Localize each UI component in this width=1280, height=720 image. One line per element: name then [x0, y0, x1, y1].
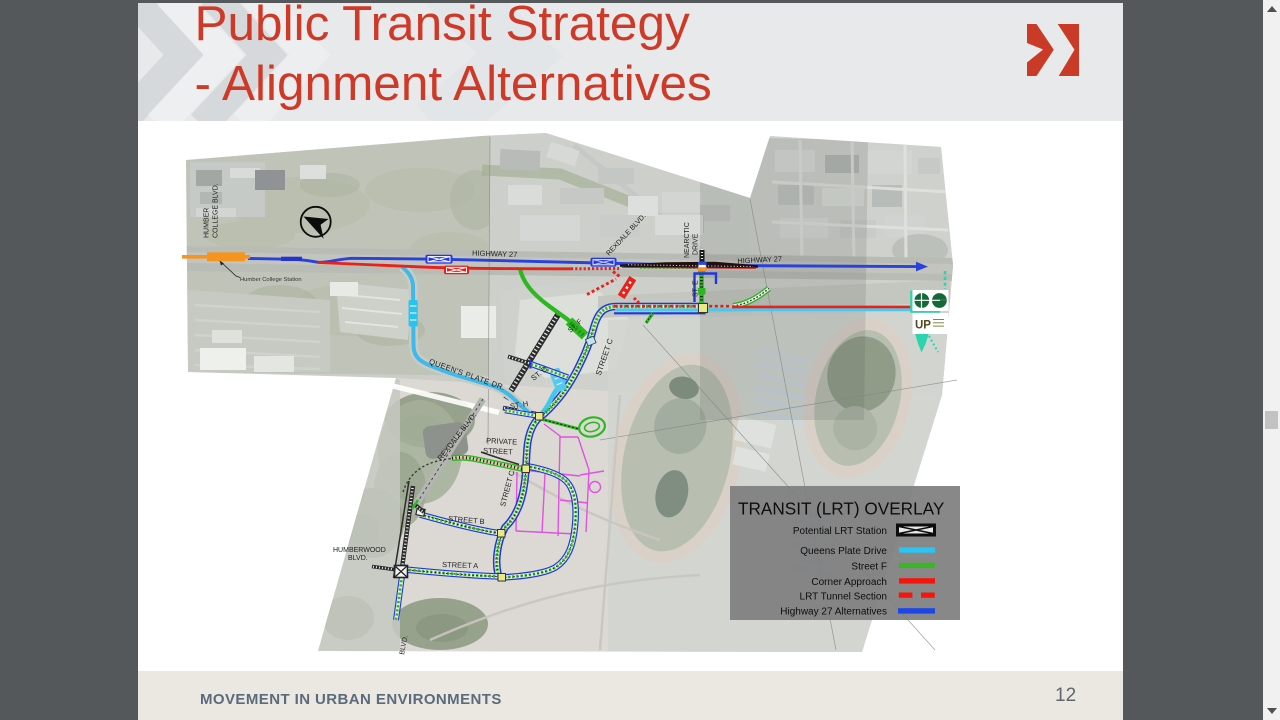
svg-text:UP: UP	[915, 320, 931, 332]
svg-text:NEARCTIC: NEARCTIC	[684, 222, 691, 258]
svg-text:BLVD.: BLVD.	[348, 555, 368, 562]
svg-text:STREET A: STREET A	[442, 560, 478, 570]
svg-text:Street F: Street F	[851, 562, 887, 573]
svg-text:STREET: STREET	[483, 446, 513, 457]
svg-text:HIGHWAY 27: HIGHWAY 27	[472, 249, 518, 260]
svg-text:DRIVE: DRIVE	[693, 233, 700, 255]
svg-text:PRIVATE: PRIVATE	[486, 436, 517, 447]
svg-text:HUMBERWOOD: HUMBERWOOD	[333, 547, 386, 554]
svg-text:COLLEGE BLVD.: COLLEGE BLVD.	[213, 183, 220, 238]
svg-text:HUMBER: HUMBER	[204, 208, 211, 238]
svg-text:ST. E: ST. E	[693, 280, 700, 297]
svg-text:Highway 27 Alternatives: Highway 27 Alternatives	[780, 607, 887, 618]
svg-text:Corner Approach: Corner Approach	[811, 577, 887, 588]
svg-text:Queens Plate Drive: Queens Plate Drive	[800, 546, 887, 557]
svg-text:Humber College Station: Humber College Station	[240, 277, 302, 283]
svg-text:LRT Tunnel Section: LRT Tunnel Section	[800, 592, 887, 603]
svg-text:TRANSIT (LRT) OVERLAY: TRANSIT (LRT) OVERLAY	[738, 499, 945, 519]
svg-text:Potential LRT Station: Potential LRT Station	[793, 526, 887, 537]
